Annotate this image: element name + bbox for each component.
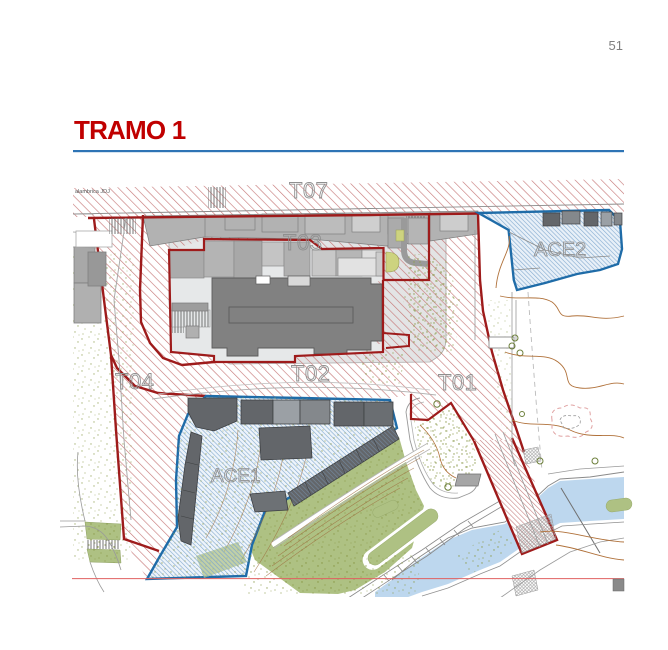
svg-text:T04: T04 [115, 369, 154, 394]
svg-text:ACE1: ACE1 [211, 466, 261, 487]
svg-text:TRAMO 1: TRAMO 1 [74, 115, 186, 145]
svg-text:T01: T01 [438, 370, 477, 395]
svg-text:ACE2: ACE2 [534, 239, 586, 261]
svg-text:alambrica JDJ: alambrica JDJ [75, 189, 110, 195]
svg-text:51: 51 [609, 38, 623, 53]
svg-text:T07: T07 [289, 178, 328, 203]
svg-text:T02: T02 [291, 361, 330, 386]
svg-text:T03: T03 [283, 230, 322, 255]
